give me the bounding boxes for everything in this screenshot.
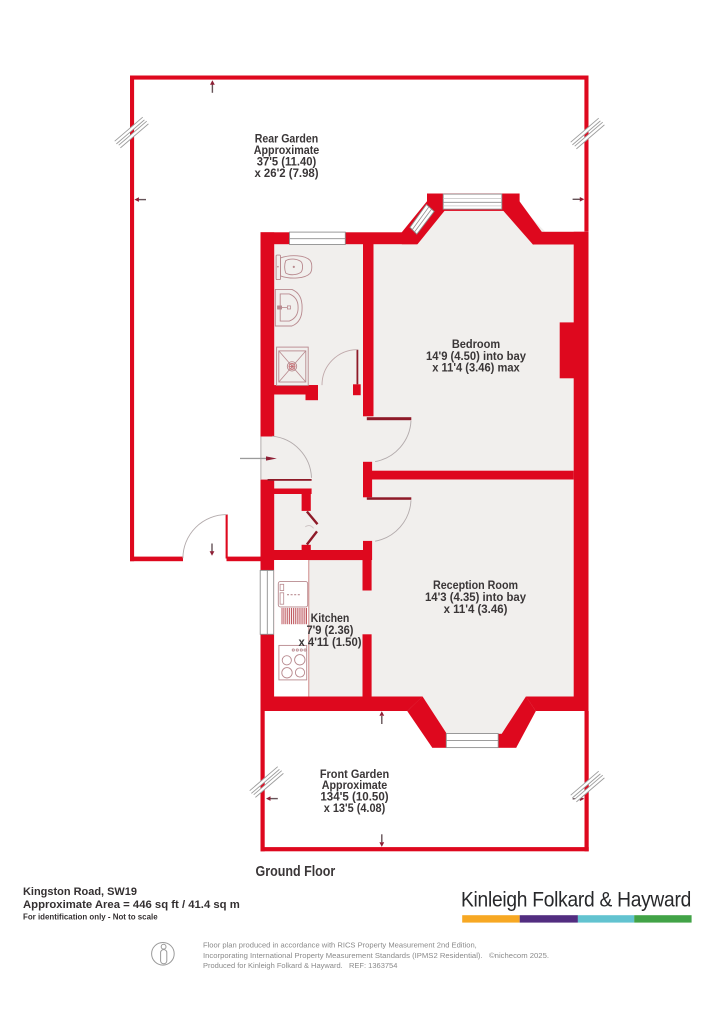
svg-text:Kinleigh Folkard & Hayward: Kinleigh Folkard & Hayward xyxy=(461,888,691,912)
svg-text:x 13'5 (4.08): x 13'5 (4.08) xyxy=(324,801,386,815)
svg-text:Kingston Road, SW19: Kingston Road, SW19 xyxy=(23,886,137,898)
svg-text:x 11'4 (3.46) max: x 11'4 (3.46) max xyxy=(432,360,520,374)
svg-text:Approximate Area = 446 sq ft /: Approximate Area = 446 sq ft / 41.4 sq m xyxy=(23,899,240,911)
svg-text:x 11'4 (3.46): x 11'4 (3.46) xyxy=(444,602,508,616)
svg-text:Ground Floor: Ground Floor xyxy=(256,864,336,880)
svg-text:Produced for Kinleigh Folkard: Produced for Kinleigh Folkard & Hayward.… xyxy=(203,961,397,970)
svg-text:Floor plan produced in accorda: Floor plan produced in accordance with R… xyxy=(203,941,477,950)
svg-text:x 26'2 (7.98): x 26'2 (7.98) xyxy=(254,166,318,180)
svg-text:x 4'11 (1.50): x 4'11 (1.50) xyxy=(299,635,362,649)
svg-text:For identification only - Not: For identification only - Not to scale xyxy=(23,911,158,921)
svg-text:Incorporating International Pr: Incorporating International Property Mea… xyxy=(203,951,549,960)
